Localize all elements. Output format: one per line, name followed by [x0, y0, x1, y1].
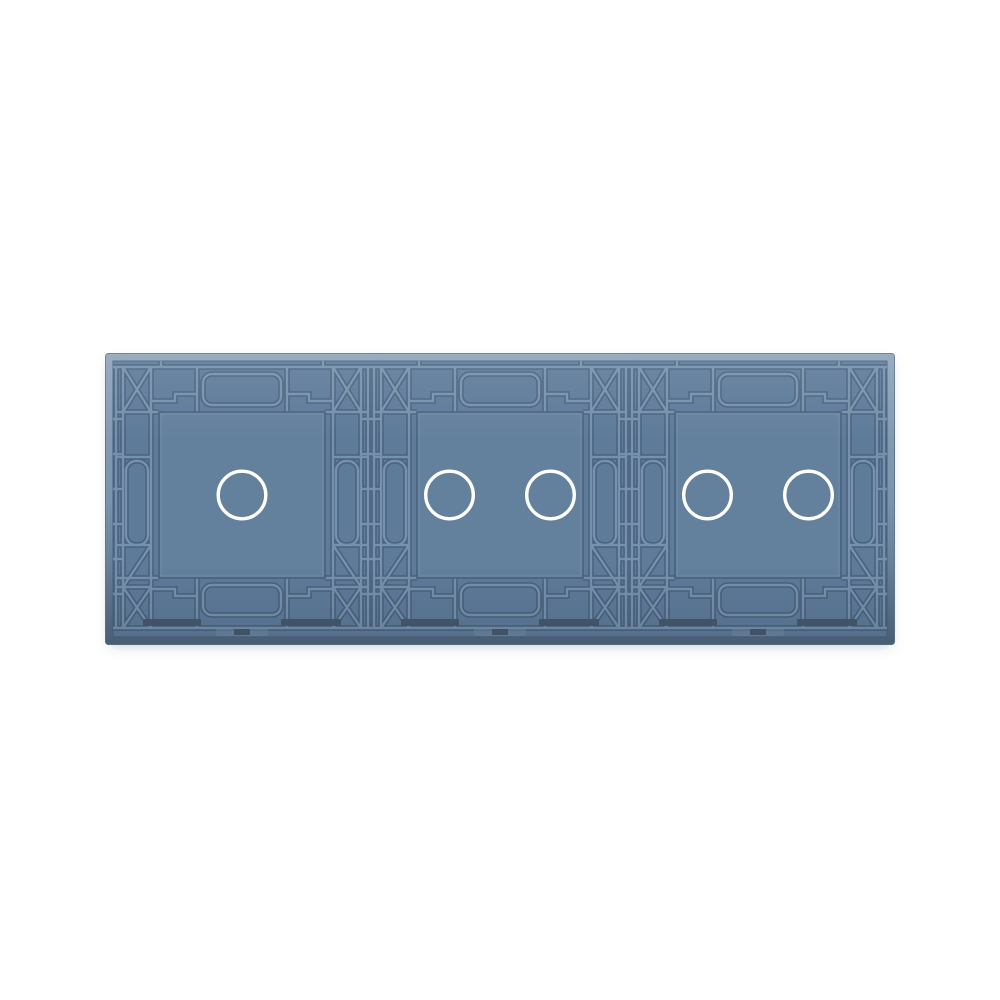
product-photo [0, 0, 1000, 1000]
switch-panel-drawing [105, 353, 895, 645]
switch-panel-back [105, 353, 895, 645]
